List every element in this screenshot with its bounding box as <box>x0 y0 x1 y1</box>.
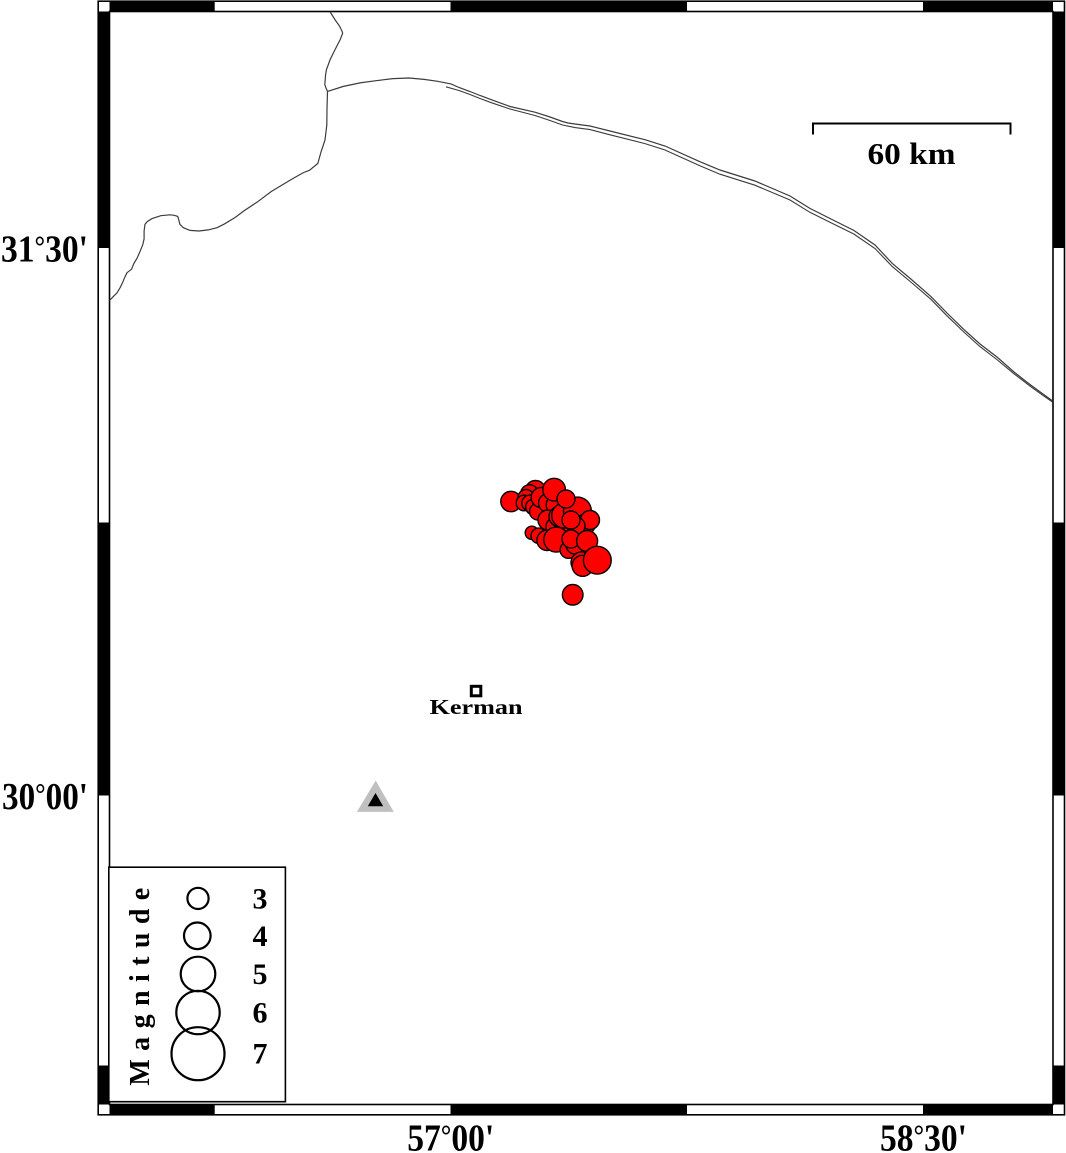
svg-text:7: 7 <box>253 1038 268 1071</box>
svg-text:58°30': 58°30' <box>880 1118 967 1153</box>
svg-text:4: 4 <box>253 920 268 953</box>
svg-text:57°00': 57°00' <box>407 1118 494 1153</box>
svg-text:30°00': 30°00' <box>2 776 88 818</box>
svg-text:5: 5 <box>253 958 268 991</box>
svg-text:6: 6 <box>253 997 268 1030</box>
svg-text:Magnitude: Magnitude <box>125 879 156 1085</box>
svg-text:60 km: 60 km <box>868 136 956 171</box>
svg-text:3: 3 <box>253 882 268 915</box>
svg-text:31°30': 31°30' <box>1 229 88 271</box>
svg-text:Kerman: Kerman <box>430 695 523 719</box>
